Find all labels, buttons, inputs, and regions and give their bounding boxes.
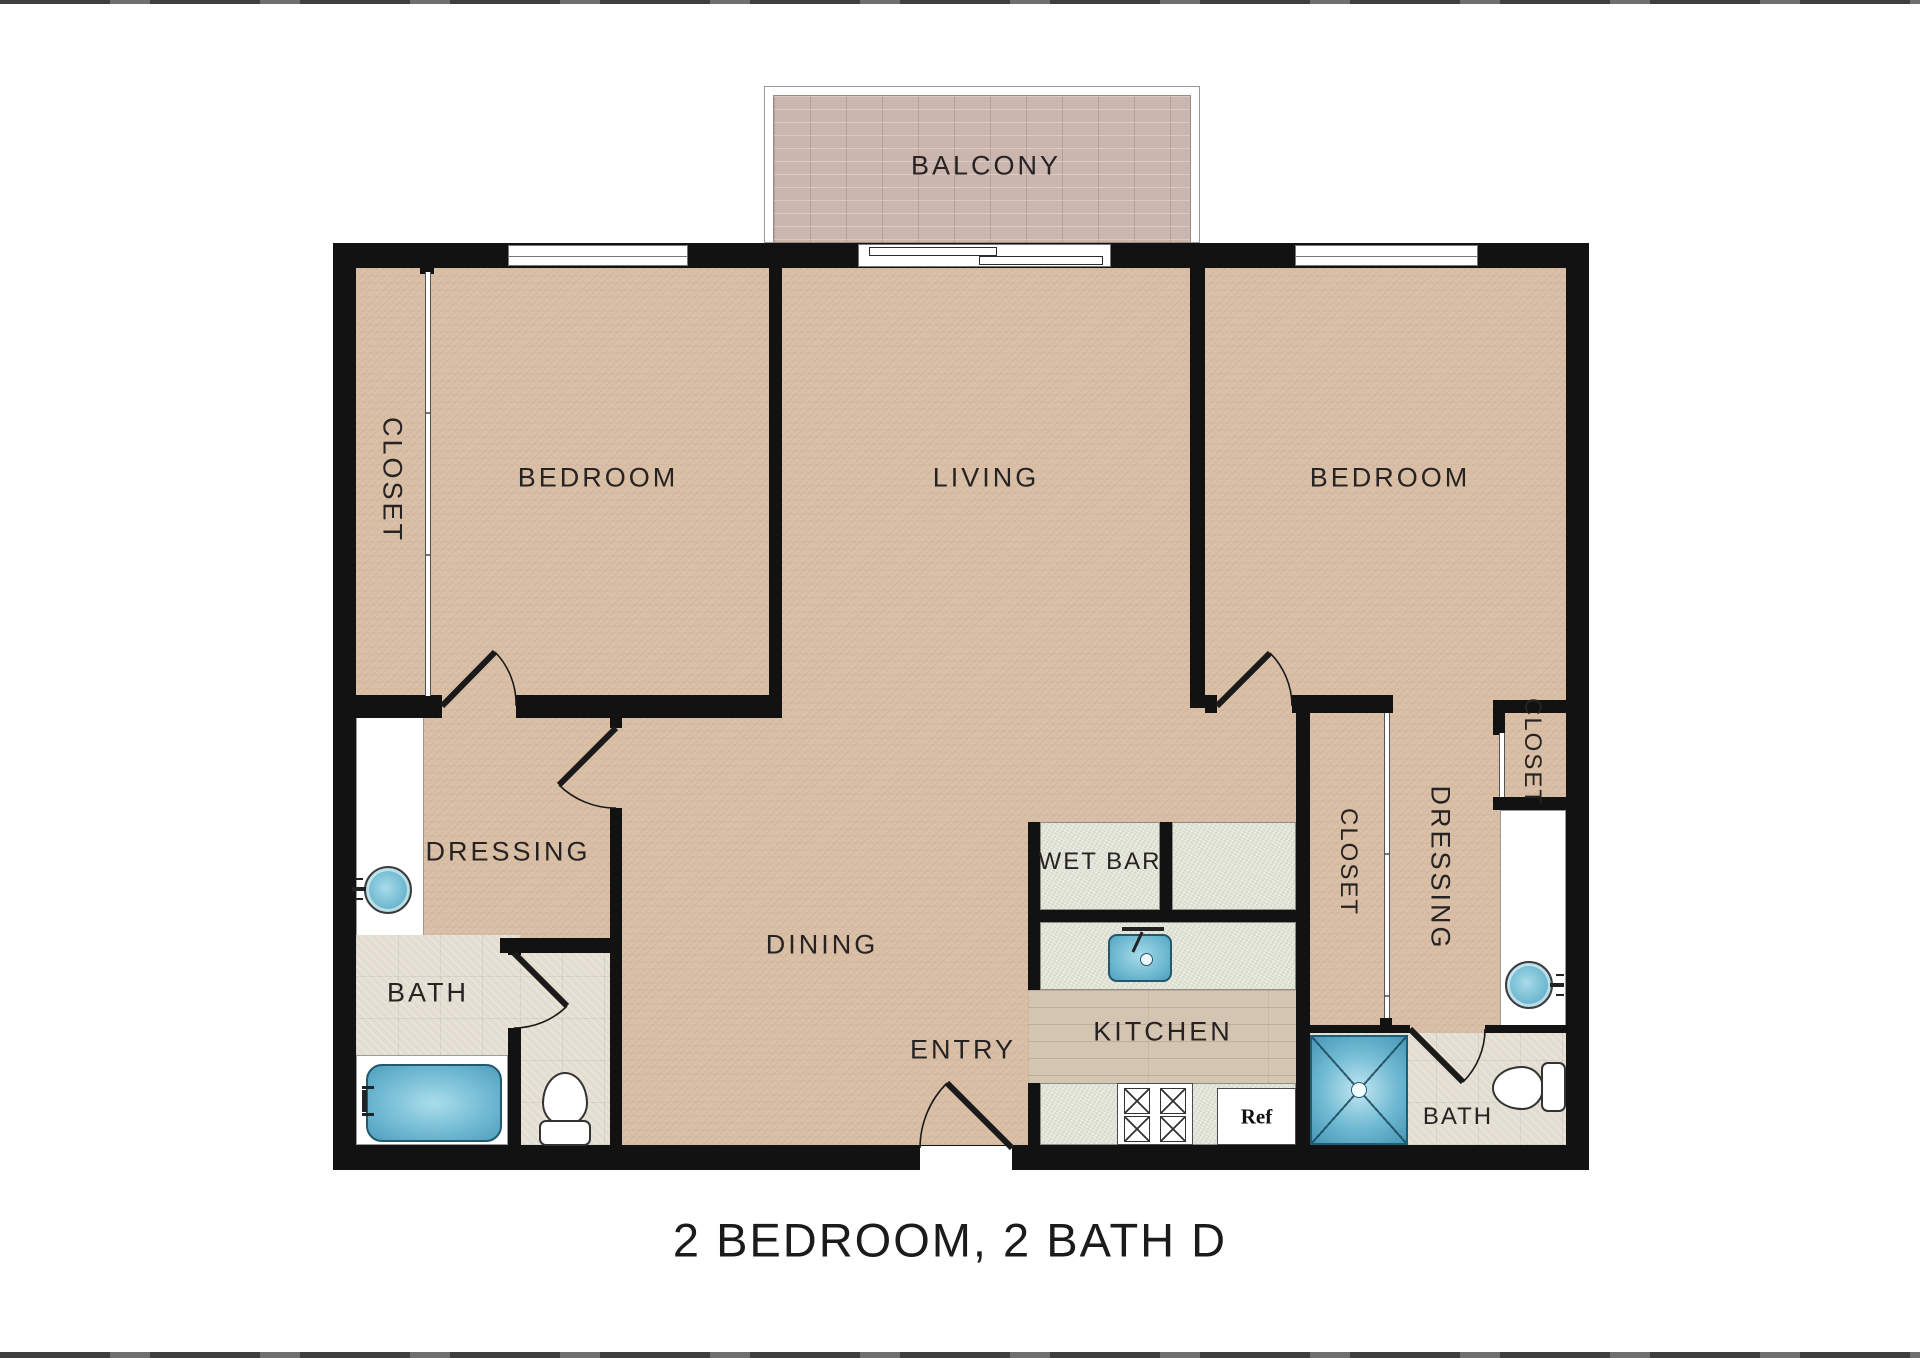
dressing-left-door-arc: [559, 785, 616, 808]
door-swings: [0, 0, 1920, 1358]
room-label-bath-right: BATH: [1423, 1103, 1493, 1131]
bedroom-left-door-leaf: [442, 652, 495, 706]
bath-right-door-arc: [1463, 1029, 1485, 1082]
dressing-left-door-leaf: [559, 728, 616, 785]
room-label-dressing-right: DRESSING: [1425, 785, 1456, 950]
room-label-closet-mid: CLOSET: [1334, 808, 1362, 916]
room-label-closet-left: CLOSET: [377, 417, 408, 543]
entry-door-leaf: [947, 1083, 1012, 1148]
room-label-wet-bar: WET BAR: [1039, 848, 1162, 876]
room-label-dining: DINING: [766, 930, 879, 961]
toilet-room-door-leaf: [514, 953, 567, 1006]
entry-door-arc: [920, 1083, 947, 1148]
bath-right-door-leaf: [1410, 1029, 1463, 1082]
room-label-closet-right: CLOSET: [1518, 698, 1546, 806]
room-label-bedroom-left: BEDROOM: [518, 463, 679, 494]
bedroom-right-door-leaf: [1217, 653, 1270, 706]
room-label-dressing-left: DRESSING: [425, 837, 590, 868]
room-label-bath-left: BATH: [387, 978, 469, 1009]
room-label-kitchen: KITCHEN: [1093, 1017, 1233, 1048]
plan-title: 2 BEDROOM, 2 BATH D: [673, 1213, 1227, 1268]
floor-plan-page: BALCONY: [0, 0, 1920, 1358]
room-label-entry: ENTRY: [910, 1035, 1016, 1066]
bedroom-right-door-arc: [1270, 653, 1292, 706]
toilet-room-door-arc: [514, 1006, 567, 1028]
room-label-living: LIVING: [933, 463, 1040, 494]
bedroom-left-door-arc: [495, 652, 516, 706]
room-label-bedroom-right: BEDROOM: [1310, 463, 1471, 494]
